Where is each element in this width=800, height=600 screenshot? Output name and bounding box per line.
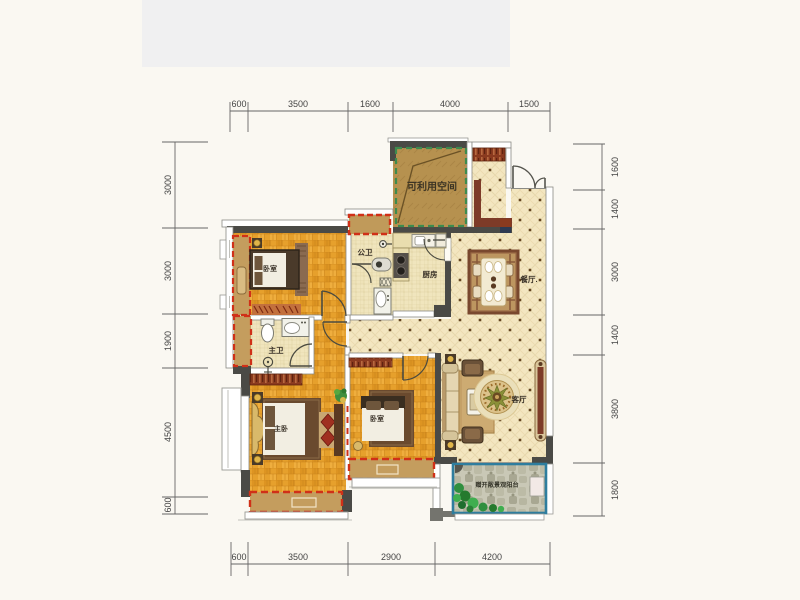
svg-text:3800: 3800 [610, 399, 620, 419]
svg-text:1400: 1400 [610, 199, 620, 219]
svg-text:3500: 3500 [288, 552, 308, 562]
svg-text:600: 600 [231, 552, 246, 562]
svg-text:3000: 3000 [163, 261, 173, 281]
svg-text:公卫: 公卫 [358, 248, 373, 257]
svg-text:3000: 3000 [610, 262, 620, 282]
svg-text:可利用空间: 可利用空间 [407, 180, 457, 193]
svg-text:赠开敞景观阳台: 赠开敞景观阳台 [475, 481, 518, 489]
svg-text:3000: 3000 [163, 175, 173, 195]
svg-text:4500: 4500 [163, 422, 173, 442]
svg-text:4000: 4000 [440, 99, 460, 109]
svg-text:1800: 1800 [610, 480, 620, 500]
svg-text:1500: 1500 [519, 99, 539, 109]
svg-text:1600: 1600 [610, 157, 620, 177]
svg-text:600: 600 [231, 99, 246, 109]
svg-text:厨房: 厨房 [423, 269, 438, 279]
svg-text:卧室: 卧室 [263, 264, 277, 273]
svg-text:1400: 1400 [610, 325, 620, 345]
svg-text:2900: 2900 [381, 552, 401, 562]
svg-text:1600: 1600 [360, 99, 380, 109]
svg-text:主卧: 主卧 [274, 424, 288, 433]
svg-text:客厅: 客厅 [511, 394, 527, 404]
svg-text:4200: 4200 [482, 552, 502, 562]
svg-text:卧室: 卧室 [370, 414, 384, 423]
svg-text:餐厅.: 餐厅. [519, 274, 537, 284]
svg-text:1900: 1900 [163, 331, 173, 351]
svg-text:600: 600 [163, 497, 173, 512]
svg-text:主卫: 主卫 [269, 345, 284, 355]
svg-text:3500: 3500 [288, 99, 308, 109]
